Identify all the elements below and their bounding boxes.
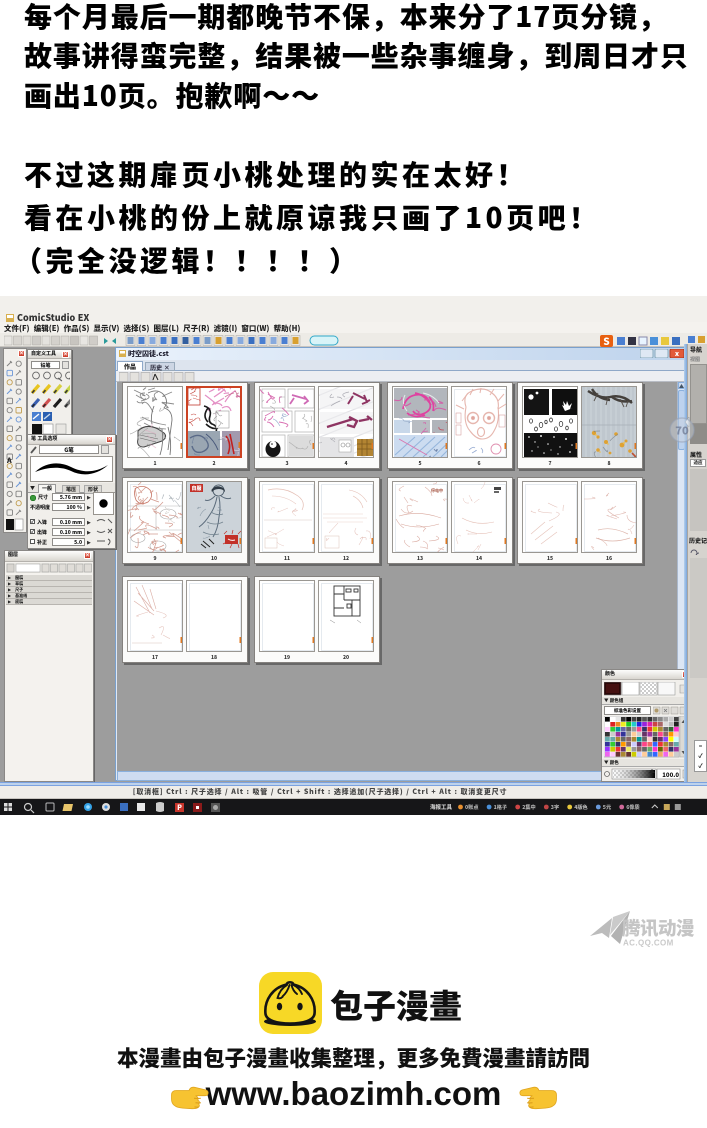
svg-text:0账点: 0账点 [465, 803, 479, 811]
svg-text:P: P [177, 803, 182, 813]
svg-text:1格子: 1格子 [494, 803, 508, 811]
svg-text:腾讯动漫: 腾讯动漫 [622, 915, 695, 941]
svg-text:自服: 自服 [191, 485, 201, 492]
svg-text:S: S [603, 334, 609, 348]
svg-text:4版色: 4版色 [574, 803, 588, 811]
svg-text:A: A [6, 456, 12, 466]
svg-text:停电中: 停电中 [431, 487, 443, 494]
svg-text:70: 70 [675, 423, 689, 439]
svg-text:2集中: 2集中 [522, 803, 536, 811]
svg-text:100.0: 100.0 [662, 770, 679, 779]
svg-text:3字: 3字 [551, 803, 559, 811]
svg-text:海报工具: 海报工具 [430, 803, 453, 811]
svg-text:6像质: 6像质 [626, 803, 640, 811]
svg-text:5元: 5元 [603, 804, 612, 811]
svg-text:AC.QQ.COM: AC.QQ.COM [623, 939, 674, 948]
